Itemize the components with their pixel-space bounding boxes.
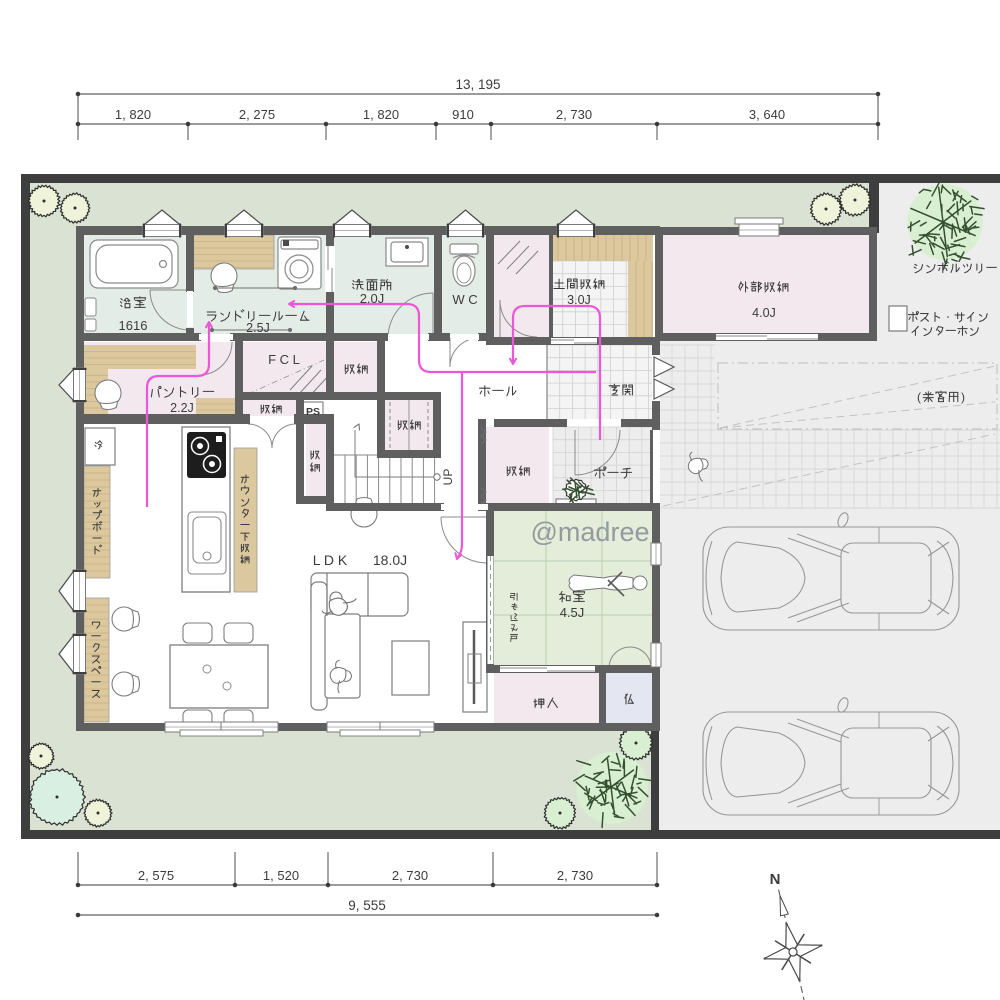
svg-text:1, 820: 1, 820 bbox=[363, 107, 399, 122]
svg-text:UP: UP bbox=[441, 469, 455, 486]
svg-text:@madree: @madree bbox=[531, 517, 650, 547]
svg-text:1, 520: 1, 520 bbox=[263, 868, 299, 883]
svg-text:1, 820: 1, 820 bbox=[115, 107, 151, 122]
svg-text:): ) bbox=[961, 390, 965, 404]
svg-text:910: 910 bbox=[452, 107, 474, 122]
svg-text:2.5J: 2.5J bbox=[246, 321, 270, 335]
svg-text:13, 195: 13, 195 bbox=[455, 77, 500, 92]
svg-text:9, 555: 9, 555 bbox=[348, 898, 386, 913]
svg-text:1616: 1616 bbox=[119, 318, 148, 333]
svg-text:2, 730: 2, 730 bbox=[557, 868, 593, 883]
svg-text:PS: PS bbox=[306, 406, 320, 418]
svg-text:(: ( bbox=[917, 390, 921, 404]
svg-text:3.0J: 3.0J bbox=[567, 293, 591, 307]
svg-text:3, 640: 3, 640 bbox=[749, 107, 785, 122]
svg-text:2, 575: 2, 575 bbox=[138, 868, 174, 883]
svg-text:4.5J: 4.5J bbox=[560, 605, 585, 620]
svg-text:18.0J: 18.0J bbox=[373, 552, 407, 568]
svg-text:4.0J: 4.0J bbox=[752, 306, 776, 320]
svg-text:N: N bbox=[770, 871, 781, 888]
svg-text:F C L: F C L bbox=[268, 352, 300, 367]
svg-text:2, 730: 2, 730 bbox=[392, 868, 428, 883]
svg-text:2, 730: 2, 730 bbox=[556, 107, 592, 122]
svg-text:W C: W C bbox=[452, 292, 477, 307]
svg-text:2, 275: 2, 275 bbox=[239, 107, 275, 122]
svg-text:2.0J: 2.0J bbox=[360, 291, 385, 306]
svg-text:2.2J: 2.2J bbox=[170, 401, 194, 415]
svg-text:L D K: L D K bbox=[313, 552, 348, 568]
